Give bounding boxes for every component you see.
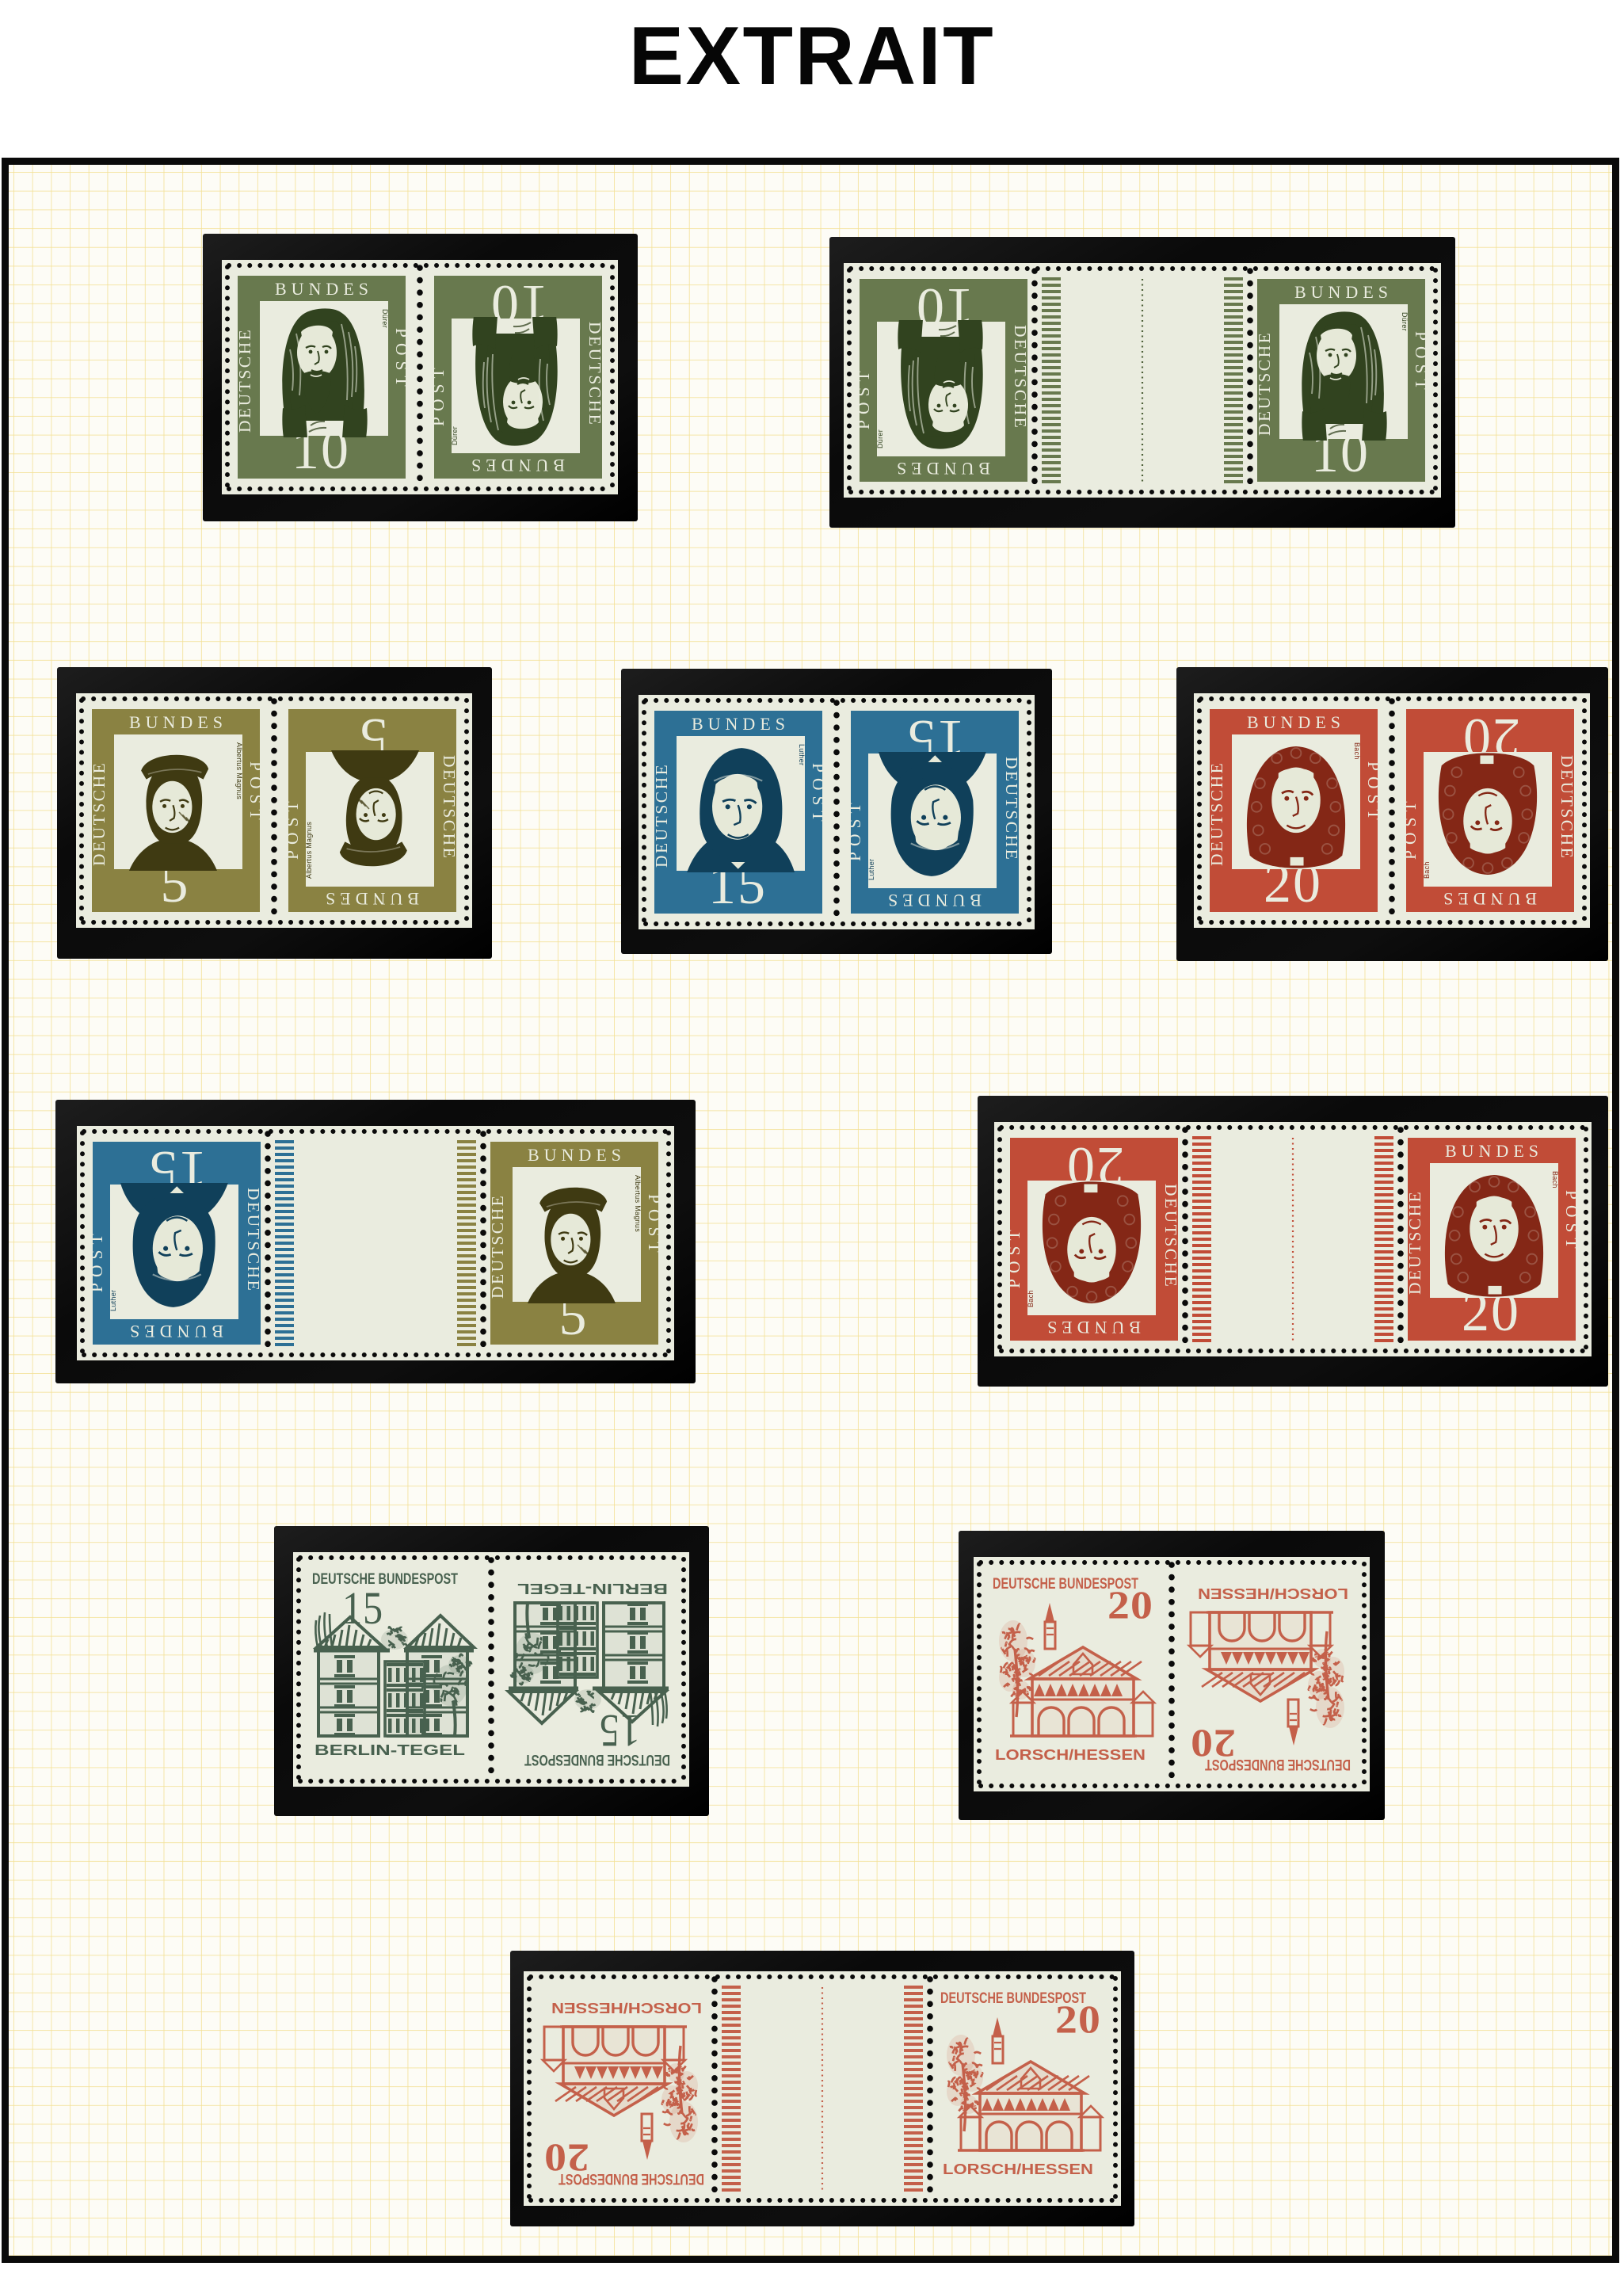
svg-text:Albertus Magnus: Albertus Magnus: [634, 1175, 642, 1232]
svg-text:BERLIN-TEGEL: BERLIN-TEGEL: [517, 1581, 668, 1597]
svg-text:POST: POST: [809, 763, 828, 827]
svg-text:BUNDES: BUNDES: [129, 712, 227, 732]
svg-text:DEUTSCHE: DEUTSCHE: [1557, 755, 1576, 860]
svg-text:DEUTSCHE: DEUTSCHE: [652, 763, 671, 868]
svg-text:BUNDES: BUNDES: [692, 714, 790, 734]
svg-text:DEUTSCHE: DEUTSCHE: [488, 1194, 507, 1299]
svg-text:DEUTSCHE: DEUTSCHE: [1207, 761, 1226, 866]
svg-text:BUNDES: BUNDES: [528, 1145, 626, 1165]
svg-text:POST: POST: [429, 362, 448, 426]
svg-text:BUNDES: BUNDES: [321, 889, 419, 909]
svg-text:20: 20: [1055, 1997, 1101, 2041]
svg-text:LORSCH/HESSEN: LORSCH/HESSEN: [551, 2000, 702, 2016]
svg-text:POST: POST: [1562, 1190, 1581, 1254]
svg-text:DEUTSCHE BUNDESPOST: DEUTSCHE BUNDESPOST: [524, 1751, 670, 1768]
svg-text:BUNDES: BUNDES: [125, 1322, 223, 1341]
svg-text:POST: POST: [1401, 795, 1420, 860]
svg-text:DEUTSCHE: DEUTSCHE: [440, 755, 459, 860]
svg-text:Luther: Luther: [867, 859, 875, 880]
svg-text:20: 20: [1107, 1582, 1153, 1627]
svg-text:Bach: Bach: [1353, 742, 1361, 760]
svg-text:DEUTSCHE: DEUTSCHE: [235, 328, 254, 433]
svg-text:POST: POST: [283, 795, 302, 860]
svg-text:BUNDES: BUNDES: [1043, 1318, 1141, 1337]
svg-text:BUNDES: BUNDES: [1247, 712, 1345, 732]
svg-text:DEUTSCHE: DEUTSCHE: [1161, 1184, 1180, 1288]
svg-text:Dürer: Dürer: [451, 426, 459, 445]
svg-text:BUNDES: BUNDES: [467, 456, 565, 475]
svg-text:BUNDES: BUNDES: [1439, 889, 1537, 909]
svg-text:DEUTSCHE: DEUTSCHE: [244, 1188, 263, 1292]
svg-text:DEUTSCHE: DEUTSCHE: [90, 761, 109, 866]
svg-text:DEUTSCHE BUNDESPOST: DEUTSCHE BUNDESPOST: [312, 1571, 458, 1588]
svg-text:20: 20: [543, 2136, 589, 2180]
svg-text:BUNDES: BUNDES: [883, 891, 982, 910]
svg-text:Luther: Luther: [798, 744, 806, 765]
svg-text:Dürer: Dürer: [876, 429, 884, 448]
svg-text:POST: POST: [845, 797, 864, 861]
svg-text:POST: POST: [854, 365, 873, 429]
svg-text:Dürer: Dürer: [381, 309, 389, 328]
svg-text:LORSCH/HESSEN: LORSCH/HESSEN: [943, 2161, 1093, 2177]
svg-text:POST: POST: [392, 328, 411, 392]
svg-text:Luther: Luther: [109, 1290, 117, 1311]
svg-text:Dürer: Dürer: [1401, 312, 1409, 331]
svg-text:Bach: Bach: [1027, 1290, 1035, 1307]
svg-text:BUNDES: BUNDES: [275, 279, 373, 299]
svg-text:Albertus Magnus: Albertus Magnus: [235, 742, 243, 799]
svg-text:BUNDES: BUNDES: [1294, 282, 1393, 302]
svg-text:DEUTSCHE: DEUTSCHE: [585, 322, 604, 426]
svg-text:LORSCH/HESSEN: LORSCH/HESSEN: [995, 1747, 1146, 1763]
svg-text:POST: POST: [1412, 331, 1431, 395]
svg-text:DEUTSCHE: DEUTSCHE: [1002, 757, 1021, 861]
svg-text:DEUTSCHE: DEUTSCHE: [1011, 325, 1030, 429]
svg-text:POST: POST: [1364, 761, 1383, 826]
svg-text:Bach: Bach: [1423, 861, 1431, 879]
svg-text:POST: POST: [87, 1228, 106, 1292]
svg-text:BUNDES: BUNDES: [892, 459, 990, 479]
svg-text:POST: POST: [1005, 1224, 1024, 1288]
svg-text:DEUTSCHE: DEUTSCHE: [1405, 1190, 1424, 1295]
svg-text:POST: POST: [246, 761, 265, 826]
svg-text:BUNDES: BUNDES: [1445, 1141, 1543, 1161]
svg-text:Bach: Bach: [1551, 1171, 1559, 1188]
svg-text:BERLIN-TEGEL: BERLIN-TEGEL: [315, 1742, 465, 1758]
svg-text:DEUTSCHE: DEUTSCHE: [1255, 331, 1274, 436]
svg-text:20: 20: [1190, 1722, 1236, 1766]
svg-text:LORSCH/HESSEN: LORSCH/HESSEN: [1198, 1585, 1348, 1601]
svg-text:POST: POST: [645, 1194, 664, 1258]
svg-text:Albertus Magnus: Albertus Magnus: [305, 822, 313, 879]
